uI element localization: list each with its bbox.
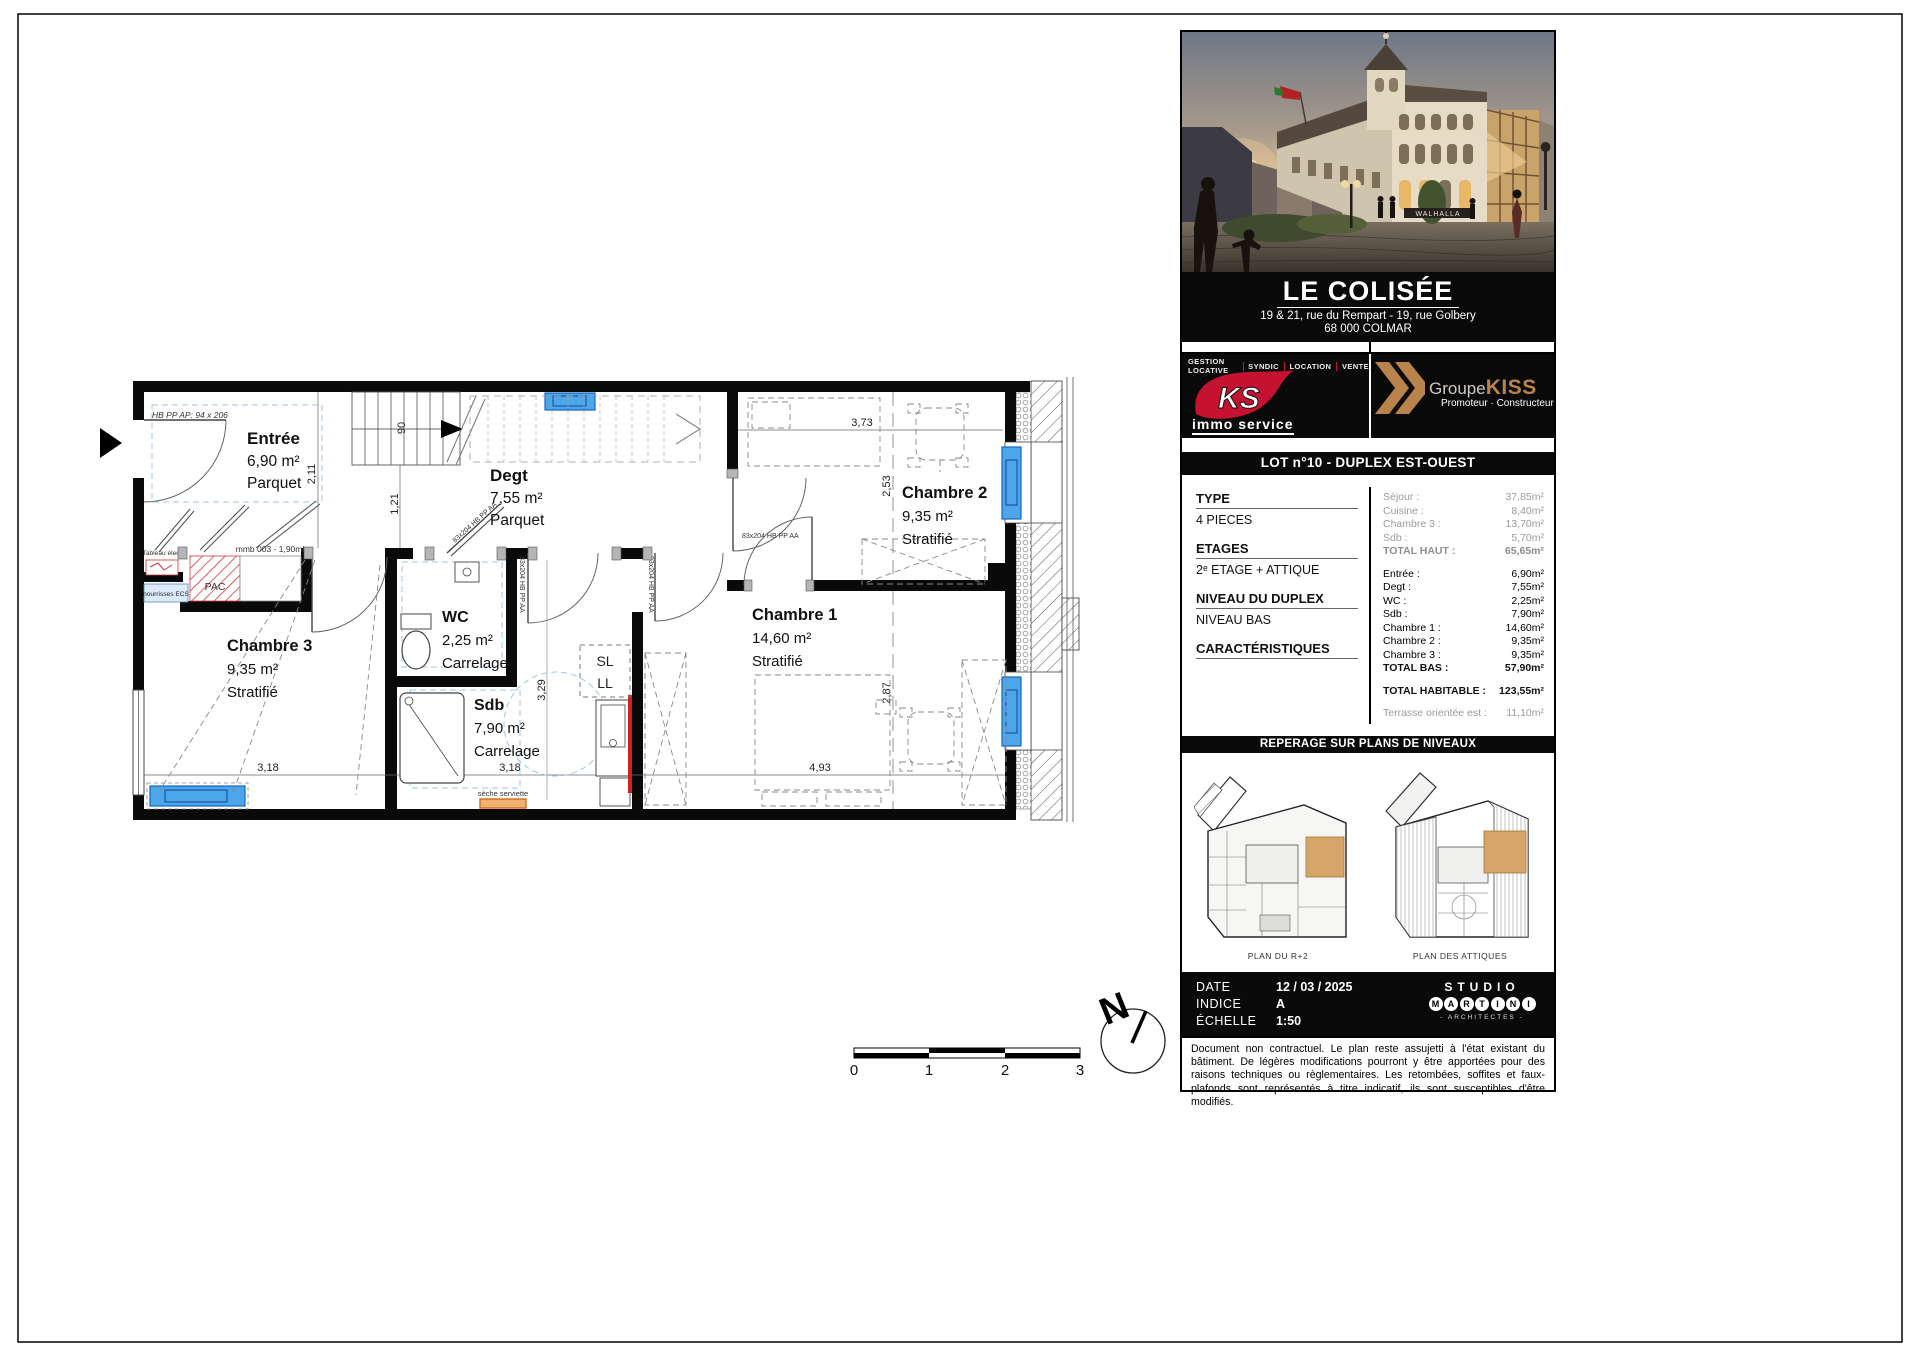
north-arrow-icon: N xyxy=(1094,985,1165,1073)
type-value: 4 PIECES xyxy=(1196,513,1358,527)
svg-text:1,21: 1,21 xyxy=(389,493,401,514)
surface-row: Chambre 1 :14,60m² xyxy=(1383,622,1544,636)
svg-text:WC: WC xyxy=(442,609,469,626)
kiss-k-icon xyxy=(1375,362,1425,430)
level-plans: PLAN DU R+2 PLAN DES ATTIQUES xyxy=(1182,753,1554,972)
ks-immo-name: immo service xyxy=(1192,416,1294,435)
niveau-heading: NIVEAU DU DUPLEX xyxy=(1196,591,1358,609)
type-heading: TYPE xyxy=(1196,491,1358,509)
svg-text:Chambre 1: Chambre 1 xyxy=(752,606,837,624)
surface-table: Séjour :37,85m² Cuisine :8,40m² Chambre … xyxy=(1371,475,1554,736)
room-chambre1: Chambre 1 14,60 m² Stratifié xyxy=(752,606,837,670)
svg-text:3,18: 3,18 xyxy=(257,762,278,774)
etages-value: 2ᵉ ETAGE + ATTIQUE xyxy=(1196,563,1358,577)
pac-closet: PAC nourrisses ECS Tableau élec. mmb 003… xyxy=(143,501,320,602)
kiss-subtitle: Promoteur · Constructeur xyxy=(1441,398,1554,409)
tableau-label: Tableau élec. xyxy=(143,550,182,557)
svg-text:Stratifié: Stratifié xyxy=(902,531,953,548)
svg-text:Carrelage: Carrelage xyxy=(474,743,540,760)
echelle-label: ÉCHELLE xyxy=(1196,1013,1276,1030)
project-title: LE COLISÉE xyxy=(1277,276,1460,308)
svg-text:3,73: 3,73 xyxy=(851,417,872,429)
divider-strip xyxy=(1182,342,1554,354)
svg-text:1: 1 xyxy=(925,1062,933,1079)
surface-row: Chambre 3 :13,70m² xyxy=(1383,518,1544,532)
floor-plan-sheet: 90 HB PP AP: 94 x 206 2,11 1,21 2,53 2,8… xyxy=(0,0,1920,1357)
svg-text:9,35 m²: 9,35 m² xyxy=(227,661,278,678)
room-wc: WC 2,25 m² Carrelage xyxy=(442,609,508,672)
project-address: 19 & 21, rue du Rempart - 19, rue Golber… xyxy=(1182,310,1554,322)
plan-attiques-thumbnail: PLAN DES ATTIQUES xyxy=(1376,767,1544,945)
svg-text:3: 3 xyxy=(1076,1062,1084,1079)
lot-attributes: TYPE 4 PIECES ETAGES 2ᵉ ETAGE + ATTIQUE … xyxy=(1182,475,1368,736)
room-chambre2: Chambre 2 9,35 m² Stratifié xyxy=(902,484,987,548)
svg-text:SL: SL xyxy=(596,653,613,669)
svg-text:Chambre 2: Chambre 2 xyxy=(902,484,987,502)
room-chambre3: Chambre 3 9,35 m² Stratifié xyxy=(227,637,312,701)
plan-r2-label: PLAN DU R+2 xyxy=(1194,951,1362,961)
svg-text:KS: KS xyxy=(1218,382,1260,415)
surface-row: Sdb :7,90m² xyxy=(1383,608,1544,622)
svg-text:Stratifié: Stratifié xyxy=(752,653,803,670)
svg-text:83x204 HB PP AA: 83x204 HB PP AA xyxy=(518,556,525,613)
svg-text:7,55 m²: 7,55 m² xyxy=(490,490,543,507)
svg-text:4,93: 4,93 xyxy=(809,762,830,774)
surface-row: Chambre 3 :9,35m² xyxy=(1383,649,1544,663)
ks-immo-logo: GESTION LOCATIVE SYNDIC LOCATION VENTE K… xyxy=(1182,354,1369,438)
ks-leaf-icon: KS xyxy=(1190,368,1300,420)
menu-vente: VENTE xyxy=(1342,362,1369,371)
project-city: 68 000 COLMAR xyxy=(1182,323,1554,335)
lot-info: TYPE 4 PIECES ETAGES 2ᵉ ETAGE + ATTIQUE … xyxy=(1182,474,1554,736)
svg-text:2,25 m²: 2,25 m² xyxy=(442,632,493,649)
svg-text:3,29: 3,29 xyxy=(536,679,548,700)
niveau-value: NIVEAU BAS xyxy=(1196,613,1358,627)
svg-text:2,87: 2,87 xyxy=(881,682,893,703)
surface-row: WC :2,25m² xyxy=(1383,595,1544,609)
svg-text:Sdb: Sdb xyxy=(474,697,504,714)
svg-text:83x204 HB PP AA: 83x204 HB PP AA xyxy=(742,533,799,540)
svg-text:2,11: 2,11 xyxy=(306,464,318,485)
plan-attiques-label: PLAN DES ATTIQUES xyxy=(1376,951,1544,961)
surface-row: Sdb :5,70m² xyxy=(1383,532,1544,546)
svg-text:Chambre 3: Chambre 3 xyxy=(227,637,312,655)
svg-text:2,53: 2,53 xyxy=(881,475,893,496)
svg-text:Carrelage: Carrelage xyxy=(442,655,508,672)
indice-value: A xyxy=(1276,996,1285,1013)
staircase: 90 xyxy=(352,392,700,465)
room-entree: Entrée 6,90 m² Parquet xyxy=(247,429,302,492)
svg-text:N: N xyxy=(1094,985,1135,1034)
indice-label: INDICE xyxy=(1196,996,1276,1013)
seche-label: sèche serviette xyxy=(478,789,528,798)
svg-text:14,60 m²: 14,60 m² xyxy=(752,630,811,647)
total-haut-row: TOTAL HAUT :65,65m² xyxy=(1383,545,1544,559)
surface-row: Entrée :6,90m² xyxy=(1383,568,1544,582)
carac-heading: CARACTÉRISTIQUES xyxy=(1196,641,1358,659)
kiss-name: KISS xyxy=(1486,376,1537,399)
architectes-word: - ARCHITECTES - xyxy=(1422,1014,1542,1021)
plan-r2-thumbnail: PLAN DU R+2 xyxy=(1194,767,1362,945)
photo-sign: WALHALLA xyxy=(1415,211,1460,218)
reperage-title: REPERAGE SUR PLANS DE NIVEAUX xyxy=(1182,736,1554,753)
etages-heading: ETAGES xyxy=(1196,541,1358,559)
divider-strip xyxy=(1182,438,1554,452)
date-label: DATE xyxy=(1196,979,1276,996)
logos-row: GESTION LOCATIVE SYNDIC LOCATION VENTE K… xyxy=(1182,354,1554,438)
echelle-value: 1:50 xyxy=(1276,1013,1301,1030)
date-value: 12 / 03 / 2025 xyxy=(1276,979,1352,996)
svg-text:9,35 m²: 9,35 m² xyxy=(902,508,953,525)
studio-word: STUDIO xyxy=(1422,980,1542,994)
entrance: HB PP AP: 94 x 206 xyxy=(100,410,228,502)
svg-text:83x204 HB PP AA: 83x204 HB PP AA xyxy=(647,556,654,613)
svg-text:0: 0 xyxy=(850,1062,858,1079)
svg-text:3,18: 3,18 xyxy=(499,762,520,774)
closet-label: mmb 003 - 1,90ml xyxy=(236,544,305,554)
martini-letters: MARTINI xyxy=(1422,997,1542,1011)
surface-row: Chambre 2 :9,35m² xyxy=(1383,635,1544,649)
project-title-block: LE COLISÉE 19 & 21, rue du Rempart - 19,… xyxy=(1182,272,1554,342)
svg-text:2: 2 xyxy=(1001,1062,1009,1079)
terrasse-row: Terrasse orientée est :11,10m² xyxy=(1383,707,1544,721)
groupe-kiss-logo: GroupeKISS Promoteur · Constructeur xyxy=(1371,354,1554,438)
page-border xyxy=(18,14,1902,1342)
total-habitable-row: TOTAL HABITABLE :123,55m² xyxy=(1383,685,1544,699)
lot-title: LOT n°10 - DUPLEX EST-OUEST xyxy=(1182,452,1554,474)
room-degt: Degt 7,55 m² Parquet xyxy=(490,466,545,529)
kiss-groupe: Groupe xyxy=(1429,379,1486,398)
entry-door-label: HB PP AP: 94 x 206 xyxy=(152,410,228,420)
surface-row: Degt :7,55m² xyxy=(1383,581,1544,595)
entrance-arrow-icon xyxy=(100,428,122,458)
svg-text:Parquet: Parquet xyxy=(490,512,545,529)
svg-text:Stratifié: Stratifié xyxy=(227,684,278,701)
studio-martini-logo: STUDIO MARTINI - ARCHITECTES - xyxy=(1422,980,1542,1021)
dimension-labels: 2,11 1,21 2,53 2,87 3,73 4,93 3,18 3,18 … xyxy=(257,417,893,774)
disclaimer: Document non contractuel. Le plan reste … xyxy=(1182,1036,1554,1094)
left-window xyxy=(133,690,144,795)
total-bas-row: TOTAL BAS :57,90m² xyxy=(1383,662,1544,676)
scale-bar: 0 1 2 3 xyxy=(850,1048,1084,1079)
surface-row: Séjour :37,85m² xyxy=(1383,491,1544,505)
laundry-box: SL LL xyxy=(580,645,630,697)
svg-text:Degt: Degt xyxy=(490,466,528,485)
pac-label: PAC xyxy=(205,581,226,593)
stair-width-dim: 90 xyxy=(396,422,408,434)
title-block-panel: WALHALLA LE COLISÉE 19 & 21, rue du Remp… xyxy=(1180,30,1556,1092)
svg-text:Entrée: Entrée xyxy=(247,429,300,448)
svg-text:Parquet: Parquet xyxy=(247,475,302,492)
project-photo: WALHALLA xyxy=(1182,32,1554,272)
ecs-label: nourrisses ECS xyxy=(143,591,189,598)
surface-row: Cuisine :8,40m² xyxy=(1383,505,1544,519)
svg-text:7,90 m²: 7,90 m² xyxy=(474,720,525,737)
drawing-meta: DATE12 / 03 / 2025 INDICEA ÉCHELLE1:50 S… xyxy=(1182,972,1554,1036)
svg-text:LL: LL xyxy=(597,675,613,691)
svg-text:6,90 m²: 6,90 m² xyxy=(247,453,300,470)
